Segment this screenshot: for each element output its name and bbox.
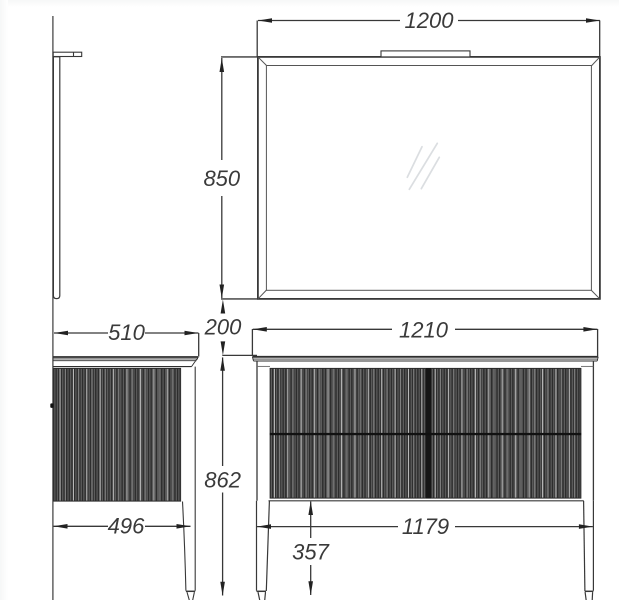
svg-text:1210: 1210 <box>399 318 449 343</box>
svg-text:510: 510 <box>108 320 145 345</box>
svg-text:850: 850 <box>203 166 240 191</box>
svg-text:862: 862 <box>204 468 241 493</box>
svg-text:1200: 1200 <box>405 8 455 33</box>
svg-text:1179: 1179 <box>402 514 449 539</box>
svg-text:200: 200 <box>204 315 242 340</box>
svg-text:357: 357 <box>292 539 329 564</box>
svg-text:496: 496 <box>108 514 145 539</box>
